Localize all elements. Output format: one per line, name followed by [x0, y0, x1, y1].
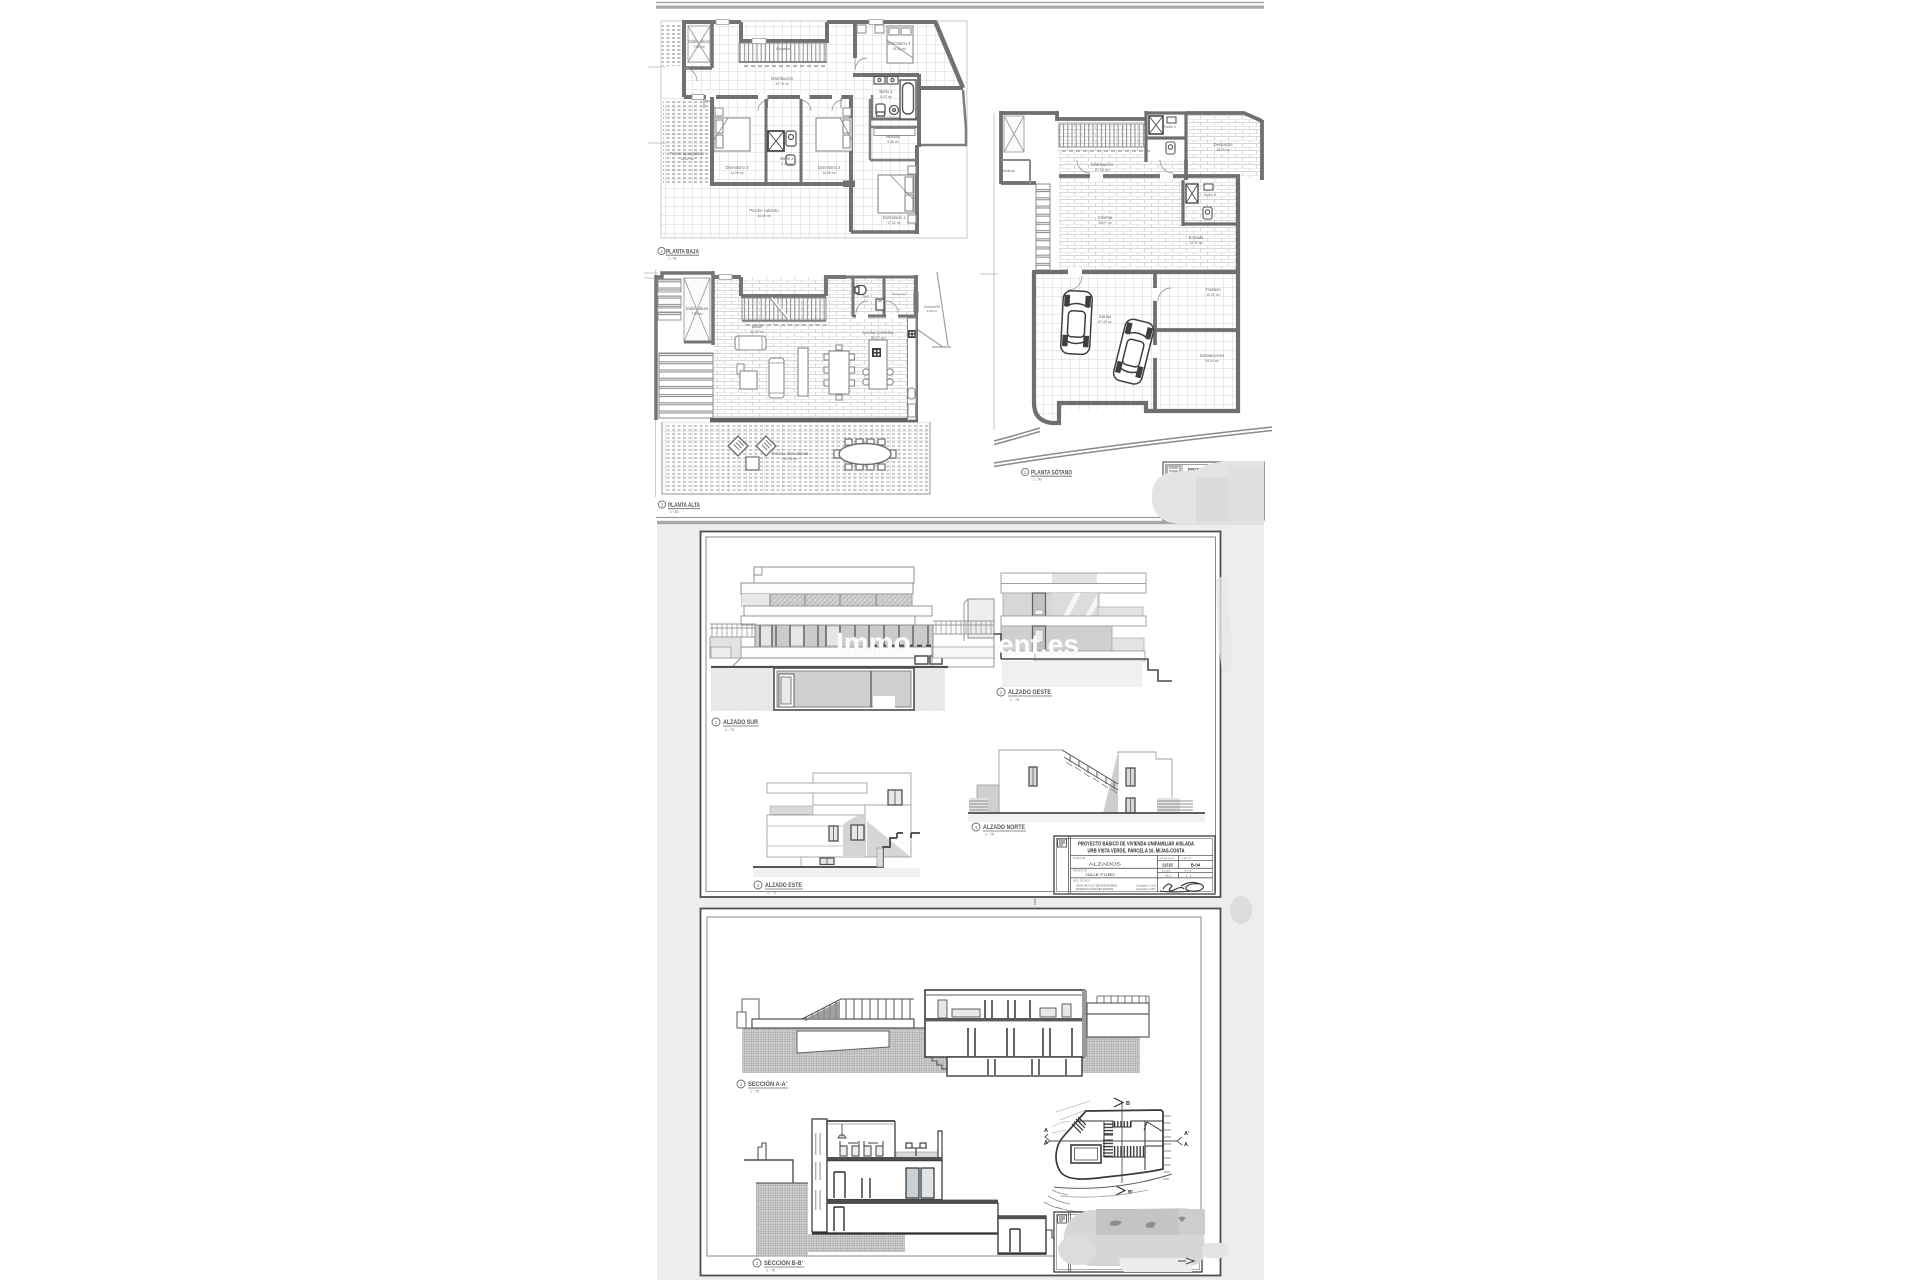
- svg-text:16.20 m²: 16.20 m²: [1216, 148, 1230, 152]
- svg-text:Colegiado nº 984: Colegiado nº 984: [1136, 887, 1156, 891]
- svg-text:14.02 m²: 14.02 m²: [680, 157, 694, 161]
- svg-text:ent.es: ent.es: [998, 629, 1079, 660]
- svg-text:URB VISTA VERDE, PARCELA 16, M: URB VISTA VERDE, PARCELA 16, MIJAS-COSTA: [1088, 849, 1185, 855]
- svg-text:Colegiado nº 1132: Colegiado nº 1132: [1136, 884, 1157, 888]
- svg-text:1 : 1: 1 : 1: [1186, 874, 1192, 878]
- svg-text:PLANTA ALTA: PLANTA ALTA: [668, 502, 700, 509]
- svg-text:2: 2: [756, 1261, 759, 1266]
- svg-text:17.02 m²: 17.02 m²: [887, 221, 901, 225]
- svg-text:Escalera: Escalera: [776, 47, 789, 51]
- svg-text:1 : 75: 1 : 75: [750, 1090, 759, 1094]
- svg-text:1 : 50: 1 : 50: [668, 257, 677, 261]
- svg-text:SECCIÓN B-B': SECCIÓN B-B': [764, 1259, 804, 1267]
- svg-text:ARQ. TECNICO: ARQ. TECNICO: [1073, 880, 1090, 883]
- svg-text:69.76 m²: 69.76 m²: [783, 457, 797, 461]
- svg-text:B-04: B-04: [1191, 863, 1201, 868]
- svg-text:1: 1: [740, 1082, 743, 1087]
- svg-text:B: B: [1126, 1101, 1130, 1107]
- svg-text:MARIANO SANCHEZ MARTIN: MARIANO SANCHEZ MARTIN: [1076, 887, 1113, 891]
- svg-text:Baño 2: Baño 2: [780, 156, 794, 161]
- svg-text:14.09 m²: 14.09 m²: [730, 171, 744, 175]
- svg-text:1: 1: [715, 720, 718, 725]
- svg-text:1 : 50: 1 : 50: [1033, 478, 1042, 482]
- svg-text:Doble altura: Doble altura: [686, 306, 709, 311]
- svg-text:57.43 m²: 57.43 m²: [1098, 320, 1112, 324]
- svg-text:Vestidor: Vestidor: [885, 134, 901, 139]
- svg-text:ALZADO OESTE: ALZADO OESTE: [1008, 690, 1051, 696]
- svg-text:15.16 m²: 15.16 m²: [892, 47, 906, 51]
- svg-text:Porche cubierto: Porche cubierto: [749, 208, 779, 213]
- svg-text:5.48 m²: 5.48 m²: [887, 140, 899, 144]
- svg-text:JUAN VAZ GUT DE SAN ROMAN: JUAN VAZ GUT DE SAN ROMAN: [1076, 884, 1117, 888]
- svg-text:Garaje: Garaje: [1099, 314, 1112, 319]
- svg-text:1 : 75: 1 : 75: [766, 1269, 775, 1273]
- svg-text:1 : 75: 1 : 75: [767, 891, 776, 895]
- svg-text:FECHA INICIO: FECHA INICIO: [1160, 857, 1175, 860]
- svg-text:5.24 m²: 5.24 m²: [781, 162, 793, 166]
- svg-text:ALZADOS: ALZADOS: [1089, 862, 1121, 867]
- svg-text:Vestíbulo: Vestíbulo: [1001, 169, 1015, 173]
- svg-text:14.06 m²: 14.06 m²: [822, 171, 836, 175]
- svg-text:JULIE FORD: JULIE FORD: [1085, 873, 1115, 877]
- svg-text:Dormitorio 2: Dormitorio 2: [818, 165, 841, 170]
- svg-text:7.65 m²: 7.65 m²: [693, 45, 705, 49]
- svg-text:PLANTA BAJA: PLANTA BAJA: [666, 249, 699, 256]
- svg-text:Despensa: Despensa: [892, 292, 906, 296]
- svg-text:SECCIÓN A-A': SECCIÓN A-A': [748, 1080, 788, 1088]
- svg-text:Cocina Comedor: Cocina Comedor: [862, 330, 894, 335]
- svg-text:Entrada: Entrada: [1189, 235, 1204, 240]
- svg-text:A: A: [1044, 1128, 1048, 1134]
- svg-text:PLANO Nº: PLANO Nº: [1181, 857, 1192, 860]
- svg-text:3: 3: [757, 883, 760, 888]
- svg-text:A: A: [1044, 1140, 1048, 1146]
- svg-text:5.02 m²: 5.02 m²: [880, 95, 892, 99]
- svg-text:2: 2: [1000, 690, 1003, 695]
- svg-text:Dormitorio 4: Dormitorio 4: [888, 41, 911, 46]
- svg-text:Baño 3: Baño 3: [1164, 125, 1175, 129]
- svg-text:A3 1:..: A3 1:..: [1165, 874, 1173, 878]
- svg-text:Doble altura: Doble altura: [688, 39, 711, 44]
- svg-text:A': A': [1184, 1131, 1190, 1137]
- svg-text:Despacho: Despacho: [1214, 142, 1234, 147]
- svg-text:Instalaciones: Instalaciones: [1200, 353, 1224, 358]
- svg-text:2.96 m²: 2.96 m²: [927, 309, 937, 313]
- svg-text:Fondo apergolado: Fondo apergolado: [670, 151, 705, 156]
- svg-text:ALZADO ESTE: ALZADO ESTE: [765, 883, 802, 889]
- svg-text:PROYECTO BÁSICO DE VIVIENDA UN: PROYECTO BÁSICO DE VIVIENDA UNIFAMILIAR …: [1078, 841, 1194, 848]
- svg-text:ESCALA: ESCALA: [1162, 870, 1171, 873]
- svg-text:Distribución: Distribución: [771, 76, 794, 81]
- svg-text:Distribución: Distribución: [1091, 162, 1114, 167]
- svg-text:A: A: [1184, 1142, 1188, 1148]
- svg-text:21/15: 21/15: [1162, 863, 1173, 868]
- svg-text:27.99 m²: 27.99 m²: [1095, 168, 1109, 172]
- svg-text:1 : 75: 1 : 75: [1010, 698, 1019, 702]
- svg-text:PLANTA SÓTANO: PLANTA SÓTANO: [1031, 468, 1072, 477]
- svg-text:19.76 m²: 19.76 m²: [775, 82, 789, 86]
- svg-text:ALZADO NORTE: ALZADO NORTE: [983, 825, 1025, 831]
- svg-text:Dormitorio 1: Dormitorio 1: [883, 215, 906, 220]
- svg-text:Dormitorio 3: Dormitorio 3: [726, 165, 749, 170]
- svg-text:40.91 m²: 40.91 m²: [750, 330, 764, 334]
- svg-text:7.65 m²: 7.65 m²: [691, 312, 703, 316]
- svg-text:1 : 75: 1 : 75: [985, 833, 994, 837]
- svg-text:Immo: Immo: [836, 627, 911, 658]
- svg-text:19.04 m²: 19.04 m²: [1205, 359, 1219, 363]
- svg-text:Aseo: Aseo: [863, 294, 870, 298]
- svg-text:ALZADO SUR: ALZADO SUR: [723, 720, 759, 726]
- svg-text:1 : 75: 1 : 75: [725, 728, 734, 732]
- svg-text:26.27 m²: 26.27 m²: [1098, 221, 1112, 225]
- svg-text:Salón: Salón: [752, 324, 763, 329]
- svg-text:Baño 4: Baño 4: [1204, 193, 1215, 197]
- svg-text:Baño 1: Baño 1: [879, 89, 893, 94]
- svg-text:FECHA: FECHA: [1184, 870, 1192, 873]
- svg-text:Terraza descubierta: Terraza descubierta: [772, 451, 809, 456]
- svg-text:30.27 m²: 30.27 m²: [871, 336, 885, 340]
- svg-text:34.46 m²: 34.46 m²: [757, 214, 771, 218]
- svg-text:10.01 m²: 10.01 m²: [1206, 293, 1220, 297]
- svg-text:1 : 50: 1 : 50: [670, 510, 679, 514]
- svg-text:4: 4: [975, 825, 978, 830]
- svg-text:PLANO DE: PLANO DE: [1073, 857, 1085, 860]
- svg-text:Trastero: Trastero: [1205, 287, 1221, 292]
- svg-text:Cinema: Cinema: [1098, 215, 1113, 220]
- svg-text:14.02 m²: 14.02 m²: [1189, 241, 1203, 245]
